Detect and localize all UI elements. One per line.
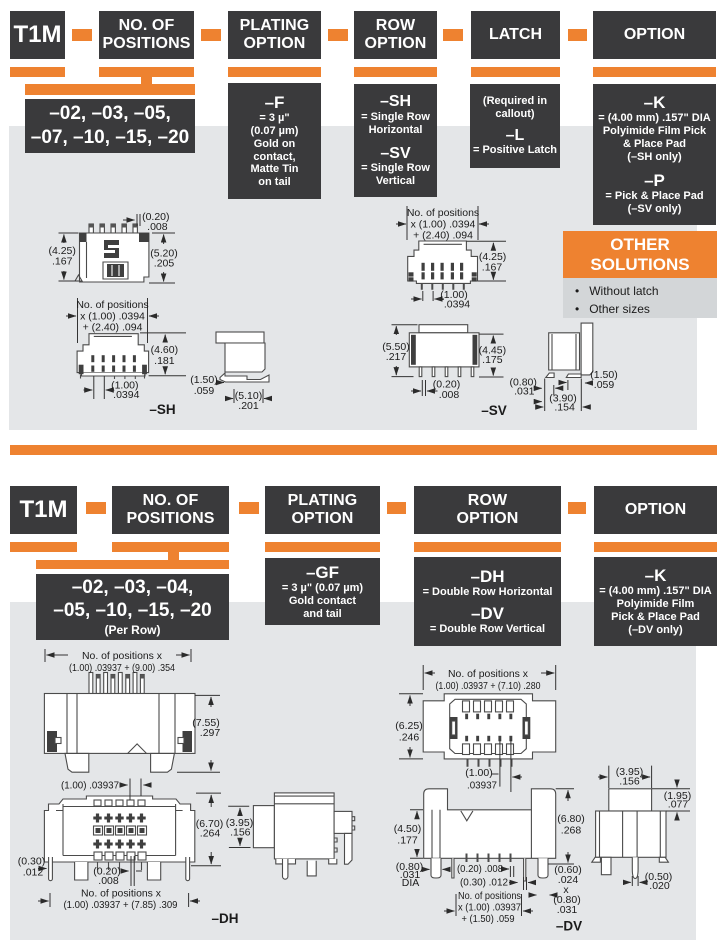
svg-text:.031: .031	[514, 386, 535, 398]
svg-text:.154: .154	[554, 401, 575, 413]
svg-text:.167: .167	[482, 262, 503, 274]
svg-text:.077: .077	[668, 799, 689, 811]
svg-text:(1.00) .03937 + (7.10) .280: (1.00) .03937 + (7.10) .280	[436, 680, 541, 692]
svg-text:.012: .012	[23, 867, 44, 879]
svg-text:.059: .059	[594, 379, 615, 391]
svg-text:DIA: DIA	[402, 877, 420, 889]
svg-text:(0.30) .012: (0.30) .012	[460, 877, 508, 889]
svg-text:(1.00) .03937 + (7.85) .309: (1.00) .03937 + (7.85) .309	[64, 899, 178, 911]
svg-text:.167: .167	[52, 256, 73, 268]
svg-text:.268: .268	[561, 825, 582, 837]
svg-text:.031: .031	[557, 904, 578, 916]
svg-text:(6.25): (6.25)	[395, 720, 422, 732]
svg-text:No. of positions: No. of positions	[76, 299, 148, 311]
svg-text:.0394: .0394	[444, 299, 470, 311]
svg-text:(0.20) .008: (0.20) .008	[457, 863, 503, 875]
svg-text:.008: .008	[439, 389, 460, 401]
svg-text:.008: .008	[98, 875, 119, 887]
svg-text:.020: .020	[649, 880, 670, 892]
svg-text:+ (2.40) .094: + (2.40) .094	[83, 322, 143, 334]
svg-text:No. of positions x: No. of positions x	[82, 650, 163, 662]
svg-text:(6.80): (6.80)	[557, 813, 584, 825]
svg-text:.03937: .03937	[467, 780, 497, 792]
svg-text:(1.00): (1.00)	[465, 767, 492, 779]
svg-text:.008: .008	[147, 221, 168, 233]
svg-text:No. of positions x: No. of positions x	[81, 888, 162, 900]
svg-text:+ (1.50) .059: + (1.50) .059	[462, 913, 515, 925]
svg-text:–DV: –DV	[556, 919, 582, 934]
svg-text:.156: .156	[230, 827, 251, 839]
svg-text:.181: .181	[154, 355, 175, 367]
svg-text:–SV: –SV	[481, 403, 507, 418]
svg-text:.059: .059	[194, 385, 215, 397]
svg-text:No. of positions: No. of positions	[407, 207, 479, 219]
svg-text:(1.00) .03937: (1.00) .03937	[61, 780, 119, 792]
svg-text:No. of positions: No. of positions	[458, 890, 521, 902]
svg-text:(1.00) .03937 + (9.00) .354: (1.00) .03937 + (9.00) .354	[69, 662, 175, 674]
svg-text:.201: .201	[238, 400, 259, 412]
svg-text:.0394: .0394	[113, 389, 139, 401]
svg-text:(4.50): (4.50)	[394, 823, 421, 835]
svg-text:.297: .297	[200, 727, 221, 739]
svg-text:.177: .177	[397, 835, 418, 847]
svg-text:.175: .175	[482, 354, 503, 366]
svg-text:.246: .246	[399, 732, 420, 744]
svg-text:.217: .217	[386, 351, 407, 363]
svg-text:No. of positions x: No. of positions x	[448, 668, 529, 680]
svg-text:.205: .205	[154, 257, 175, 269]
svg-text:x (1.00) .03937: x (1.00) .03937	[458, 902, 521, 914]
svg-text:–DH: –DH	[211, 911, 238, 926]
svg-text:–SH: –SH	[149, 402, 175, 417]
svg-text:.156: .156	[619, 776, 640, 788]
svg-text:.264: .264	[200, 828, 221, 840]
svg-text:+ (2.40) .094: + (2.40) .094	[413, 230, 473, 242]
